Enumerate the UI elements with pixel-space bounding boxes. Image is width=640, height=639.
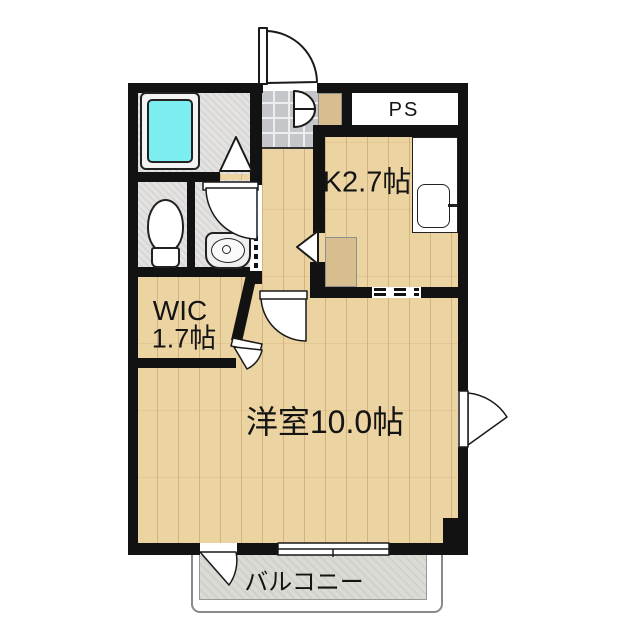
shoe-cabinet-door-lower: [294, 109, 315, 127]
door-window-symbols: [0, 0, 640, 639]
bathroom-folding-door: [220, 137, 252, 171]
main-room-door-leaf: [260, 291, 307, 299]
floorplan: PS K2.7帖 WIC 1.7帖 洋室10.0帖 バルコニー: [0, 0, 640, 639]
shoe-cabinet-door-upper: [294, 91, 315, 109]
main-room-label: 洋室10.0帖: [246, 406, 404, 438]
balcony-door-arc: [200, 552, 237, 585]
ps-label: PS: [389, 100, 420, 120]
kitchen-label: K2.7帖: [323, 169, 412, 198]
kitchen-door: [297, 231, 318, 264]
entrance-door-leaf: [259, 28, 267, 84]
wic-label-line2: 1.7帖: [152, 326, 217, 353]
wic-door-arc: [234, 347, 262, 369]
wic-label-line1: WIC: [153, 297, 207, 325]
washroom-door-arc: [206, 188, 257, 239]
diagonal-wall: [231, 275, 257, 342]
main-room-door-arc: [261, 296, 306, 341]
side-window-leaf: [459, 391, 468, 447]
balcony-label: バルコニー: [244, 571, 364, 595]
entrance-door-arc: [267, 31, 317, 83]
side-window-arc: [468, 393, 507, 445]
